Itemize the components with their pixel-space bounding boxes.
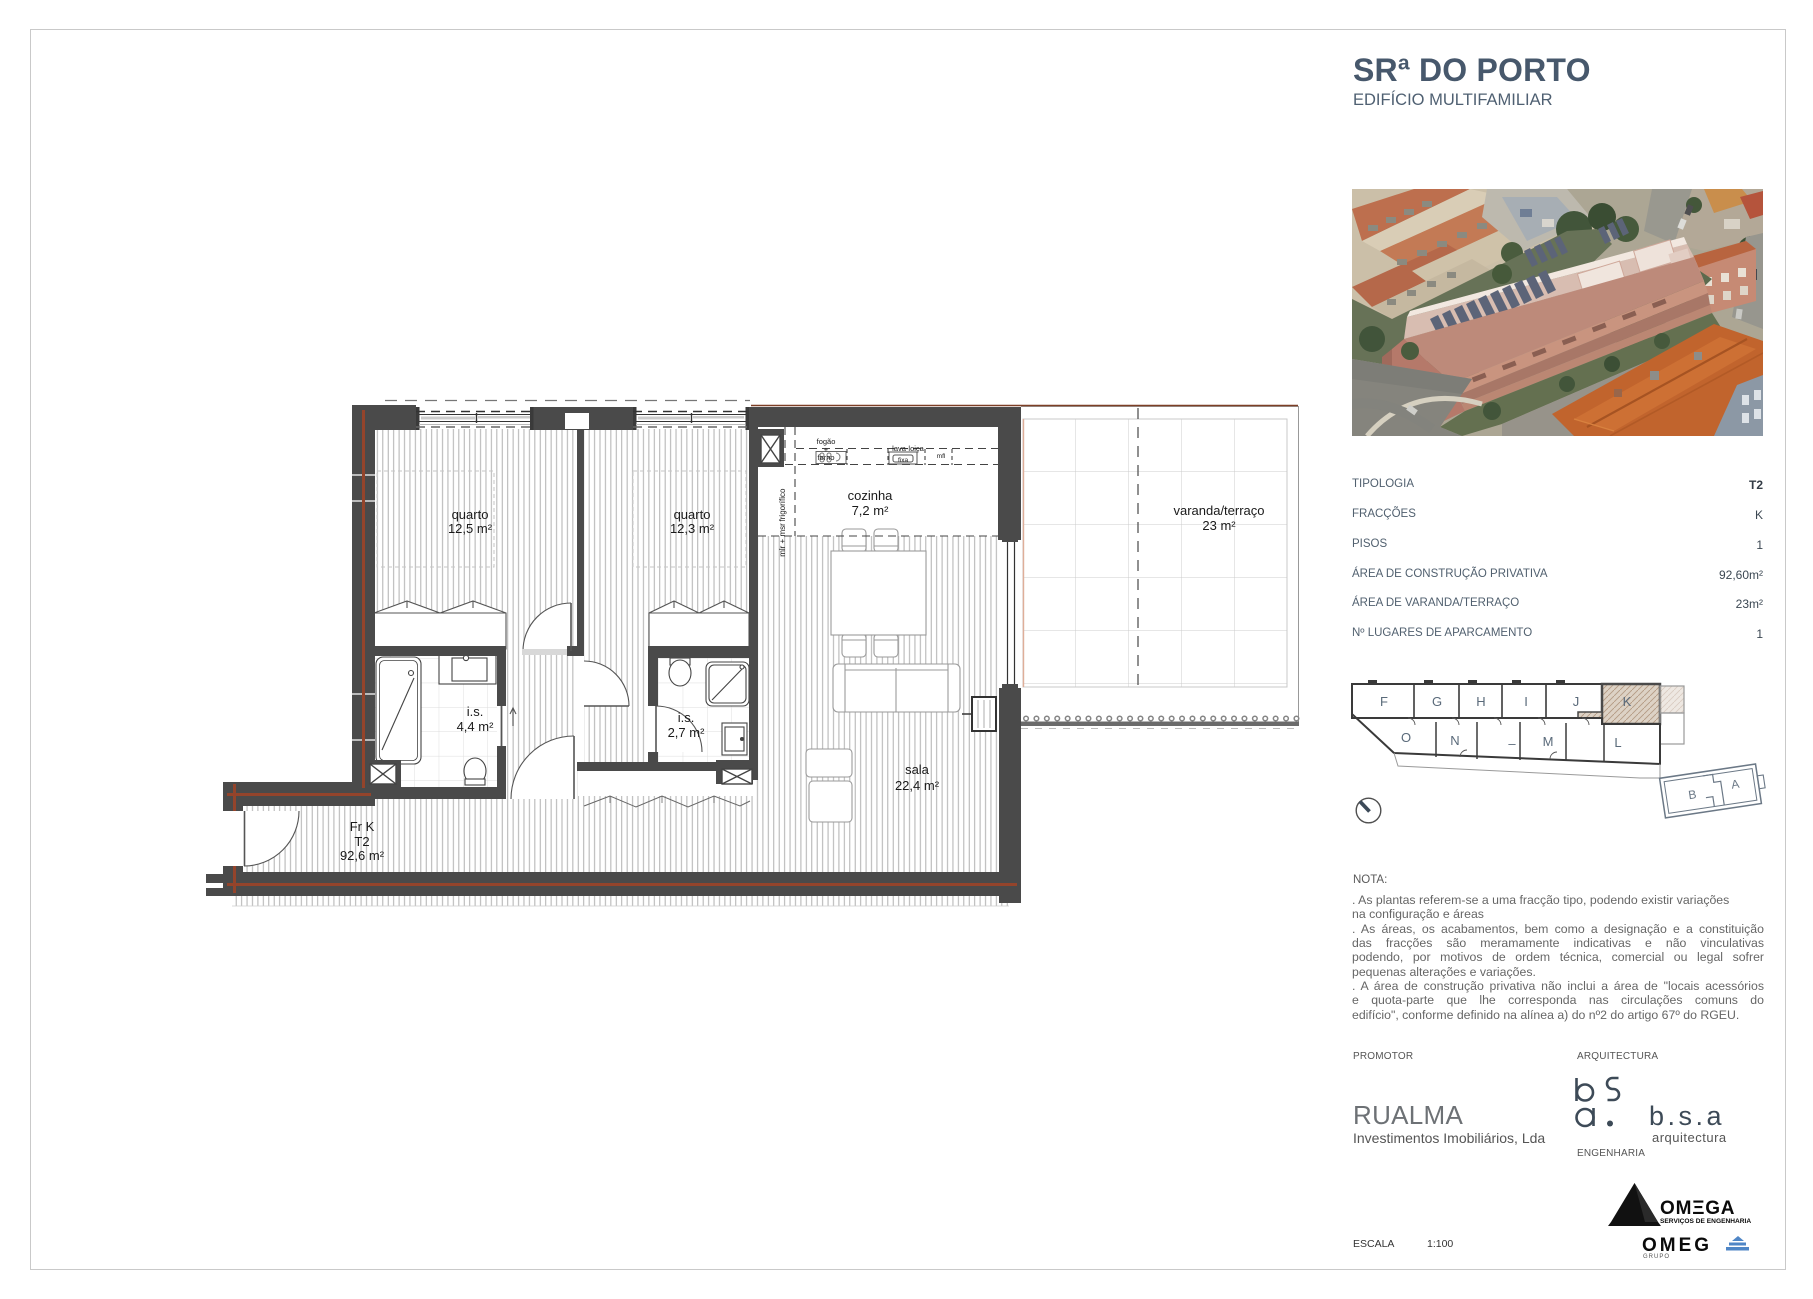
svg-text:sala: sala [905,762,930,777]
svg-text:arquitectura: arquitectura [1652,1130,1727,1145]
svg-text:Fr K: Fr K [350,819,375,834]
svg-text:7,2 m²: 7,2 m² [852,503,890,518]
svg-text:frigorífico: frigorífico [778,488,787,521]
svg-text:mlr + msr: mlr + msr [778,523,787,557]
svg-text:G: G [1432,694,1442,709]
svg-text:4,4 m²: 4,4 m² [457,719,495,734]
svg-text:cozinha: cozinha [848,488,894,503]
svg-text:92,6 m²: 92,6 m² [340,848,385,863]
svg-text:quarto: quarto [674,507,711,522]
svg-text:23 m²: 23 m² [1202,518,1236,533]
svg-text:fixa: fixa [898,457,909,464]
svg-text:forno: forno [817,453,834,462]
svg-text:SERVIÇOS DE ENGENHARIA: SERVIÇOS DE ENGENHARIA [1660,1218,1751,1225]
svg-text:T2: T2 [354,834,369,849]
svg-text:F: F [1380,694,1388,709]
svg-text:–: – [1508,736,1516,751]
svg-text:i.s.: i.s. [467,704,484,719]
svg-text:12,5 m²: 12,5 m² [448,521,493,536]
svg-text:12,3 m²: 12,3 m² [670,521,715,536]
svg-text:L: L [1614,735,1621,750]
svg-text:lava-loiça: lava-loiça [892,444,925,453]
svg-text:OMΞGA: OMΞGA [1660,1198,1735,1219]
svg-text:GRUPO: GRUPO [1643,1254,1670,1260]
svg-text:varanda/terraço: varanda/terraço [1173,503,1264,518]
svg-text:J: J [1573,694,1580,709]
svg-text:mfl: mfl [937,453,946,460]
svg-text:22,4 m²: 22,4 m² [895,778,940,793]
svg-text:N: N [1450,733,1459,748]
svg-text:b.s.a: b.s.a [1649,1101,1725,1131]
svg-text:M: M [1543,734,1554,749]
svg-text:i.s.: i.s. [678,710,695,725]
svg-text:K: K [1623,694,1632,709]
svg-text:I: I [1524,694,1528,709]
svg-text:O: O [1401,730,1411,745]
svg-text:quarto: quarto [452,507,489,522]
svg-text:OMEG: OMEG [1642,1235,1712,1256]
svg-text:H: H [1476,694,1485,709]
svg-text:2,7 m²: 2,7 m² [668,725,706,740]
